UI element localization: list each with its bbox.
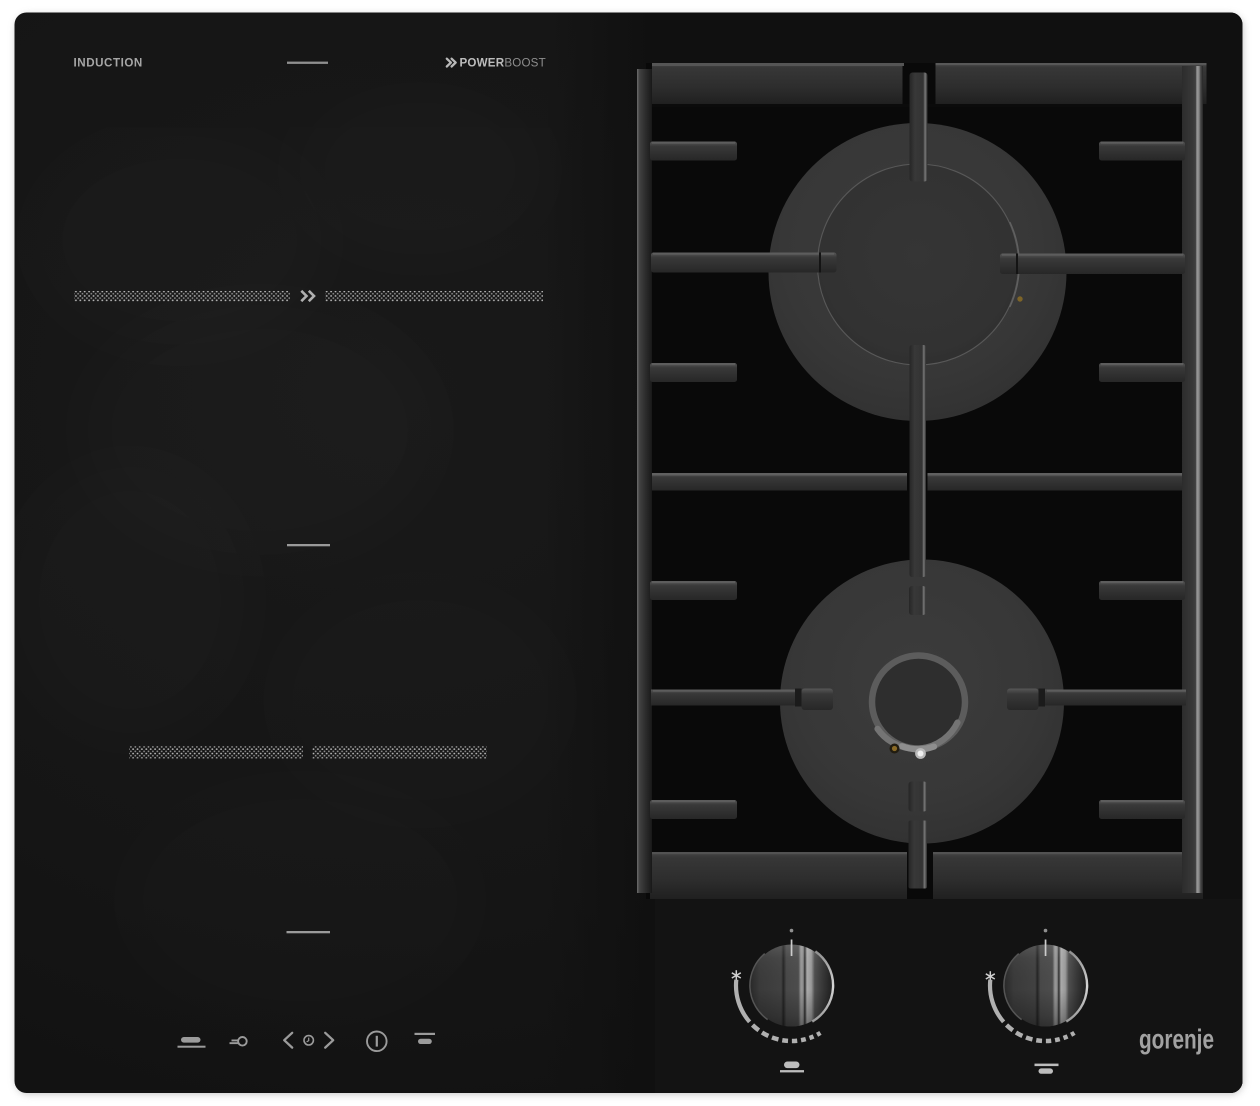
svg-text:POWERBOOST: POWERBOOST [460, 57, 546, 70]
svg-text:INDUCTION: INDUCTION [74, 57, 143, 70]
svg-text:gorenje: gorenje [1139, 1024, 1214, 1055]
